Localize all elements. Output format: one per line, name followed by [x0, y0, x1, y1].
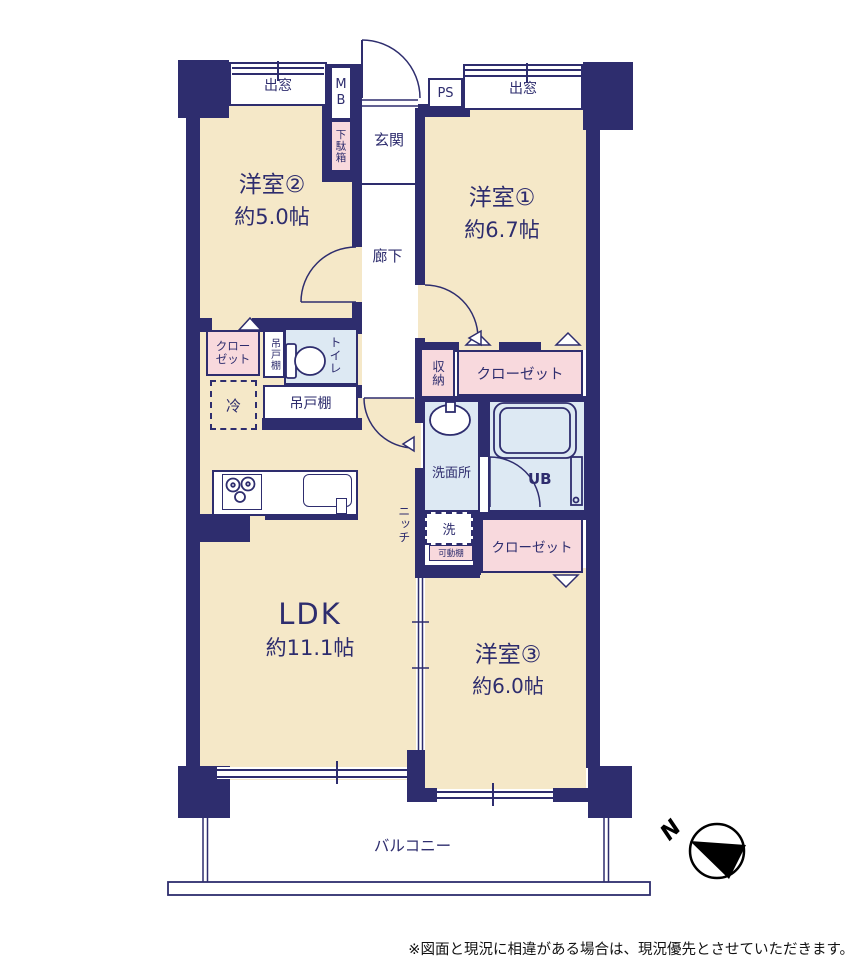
- kitchen-faucet: [336, 498, 347, 514]
- hanging-cupboard-side-label: 吊戸棚: [267, 338, 282, 371]
- storage-box: 収納: [420, 348, 455, 398]
- western3-name: 洋室③: [428, 642, 588, 668]
- western1-size: 約6.7帖: [422, 218, 582, 242]
- toilet-room: トイレ: [284, 328, 358, 385]
- pillar-top-right: [583, 62, 633, 130]
- movable-shelf-label: 可動棚: [438, 547, 464, 559]
- entrance-label: 玄関: [362, 132, 416, 149]
- kitchen-stove: [222, 474, 262, 510]
- movable-shelf: 可動棚: [429, 545, 473, 561]
- washer-label: 洗: [442, 519, 455, 538]
- western2-size: 約5.0帖: [190, 205, 354, 229]
- unit-bath-label: UB: [528, 470, 552, 488]
- bay-window-left-label: 出窓: [229, 78, 327, 94]
- wall-western3-top: [415, 565, 480, 578]
- disclaimer-text: ※図面と現況に相違がある場合は、現況優先とさせていただきます。: [408, 938, 854, 959]
- shoe-cabinet: 下駄箱: [330, 120, 352, 172]
- western2-label: 洋室② 約5.0帖: [190, 172, 354, 230]
- meter-box: MB: [330, 66, 352, 120]
- storage-label: 収納: [428, 360, 447, 387]
- closet-left: クローゼット: [206, 330, 260, 376]
- refrigerator-label: 冷: [226, 395, 241, 416]
- wall-washroom-ub-divider: [480, 400, 488, 457]
- shoe-cabinet-label: 下駄箱: [334, 129, 349, 164]
- refrigerator-space: 冷: [210, 380, 257, 430]
- balcony-rail-left: [203, 818, 208, 884]
- north-label: N: [656, 815, 687, 846]
- western2-name: 洋室②: [190, 172, 354, 198]
- washer-space: 洗: [425, 512, 473, 545]
- bay-window-right-label: 出窓: [463, 81, 583, 97]
- wall-kitchen-stub: [200, 514, 250, 542]
- meter-box-label: MB: [334, 77, 349, 109]
- closet-upper-right: クローゼット: [457, 350, 583, 396]
- wall-ldk-bottom-stub: [200, 766, 217, 779]
- kitchen-counter-edge: [265, 516, 358, 520]
- toilet-label: トイレ: [327, 336, 344, 375]
- niche-label: ニッチ: [396, 505, 410, 544]
- wall-right: [586, 124, 600, 768]
- balcony-slab: [168, 882, 650, 895]
- north-arrow: [690, 824, 746, 879]
- washroom: 洗面所: [423, 400, 480, 512]
- hanging-cupboard-kitchen: 吊戸棚: [263, 385, 358, 420]
- unit-bath: UB: [488, 400, 586, 512]
- pillar-bottom-right: [588, 766, 632, 818]
- hallway-label: 廊下: [360, 248, 415, 265]
- pipe-space-label: PS: [437, 86, 453, 101]
- ldk-name: LDK: [210, 598, 410, 631]
- washroom-label: 洗面所: [425, 462, 478, 481]
- closet-lower-right-label: クローゼット: [492, 536, 573, 556]
- closet-lower-right: クローゼット: [481, 518, 583, 573]
- ldk-size: 約11.1帖: [210, 636, 410, 660]
- ldk-label: LDK 約11.1帖: [210, 598, 410, 660]
- western3-size: 約6.0帖: [428, 675, 588, 698]
- western1-label: 洋室① 約6.7帖: [422, 185, 582, 243]
- closet-left-label: クローゼット: [212, 340, 254, 366]
- hanging-cupboard-side: 吊戸棚: [263, 330, 285, 378]
- hanging-cupboard-kitchen-label: 吊戸棚: [290, 393, 332, 413]
- wall-ldk-western3-bottom: [407, 750, 425, 802]
- balcony-rail-right: [604, 818, 609, 884]
- closet-upper-right-label: クローゼット: [477, 363, 564, 384]
- western1-name: 洋室①: [422, 185, 582, 211]
- balcony-label: バルコニー: [330, 838, 495, 856]
- floor-plan: 出窓 出窓 MB PS 下駄箱 クローゼット 吊戸棚 トイレ 吊戸棚 冷 収納 …: [0, 0, 858, 972]
- western3-label: 洋室③ 約6.0帖: [428, 642, 588, 698]
- entrance-door-arc: [362, 40, 420, 98]
- wall-western3-bottom-right: [553, 788, 588, 802]
- pipe-space-box: PS: [428, 78, 463, 108]
- pillar-top-left: [178, 60, 229, 118]
- wall-western3-bottom-left: [425, 788, 437, 802]
